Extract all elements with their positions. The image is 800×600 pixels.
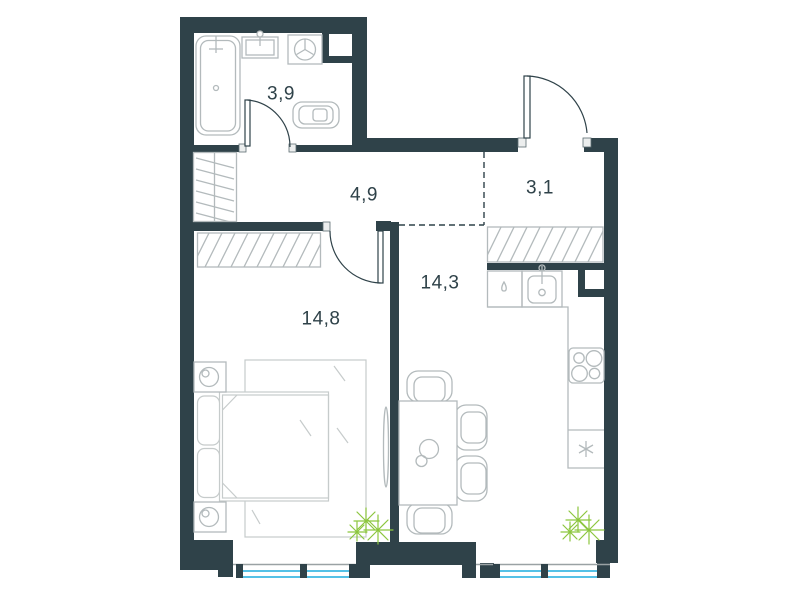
- hall-closet: [194, 153, 237, 224]
- area-label-kitchen-living: 14,3: [421, 273, 460, 295]
- area-label-hallway: 4,9: [350, 185, 378, 207]
- chair-right-2: [455, 456, 487, 501]
- bedroom-window: [233, 565, 356, 578]
- washing-machine: [288, 35, 322, 64]
- area-label-bedroom: 14,8: [302, 309, 341, 331]
- fridge-snowflake-icon: [579, 441, 593, 457]
- chair-bottom: [407, 503, 452, 534]
- entry-wardrobe: [482, 223, 607, 266]
- entrance-door: [524, 76, 587, 138]
- bedroom-plant: [348, 508, 393, 544]
- area-label-entry: 3,1: [526, 178, 554, 200]
- floor-plan-drawing: [0, 0, 800, 600]
- kitchen-plant: [561, 507, 604, 544]
- zone-boundary-dashed: [399, 152, 484, 225]
- tv: [384, 407, 389, 487]
- bed: [220, 392, 329, 501]
- stove: [569, 348, 604, 383]
- nightstand-lamp-bottom: [194, 502, 226, 532]
- chair-top: [407, 371, 452, 402]
- toilet: [293, 102, 339, 128]
- dishwasher-drop-icon: [502, 282, 507, 291]
- bedroom-door: [330, 231, 383, 283]
- bed-pillows: [198, 396, 220, 498]
- chair-right-1: [455, 405, 487, 450]
- nightstand-lamp-top: [194, 362, 226, 392]
- bathtub: [196, 36, 240, 135]
- dining-table: [399, 401, 457, 505]
- floor-plan: 3,9 4,9 3,1 14,3 14,8: [0, 0, 800, 600]
- bathroom-door: [245, 100, 290, 147]
- area-label-bathroom: 3,9: [267, 84, 295, 106]
- bedroom-wardrobe: [190, 229, 341, 271]
- bathroom-sink: [242, 31, 278, 58]
